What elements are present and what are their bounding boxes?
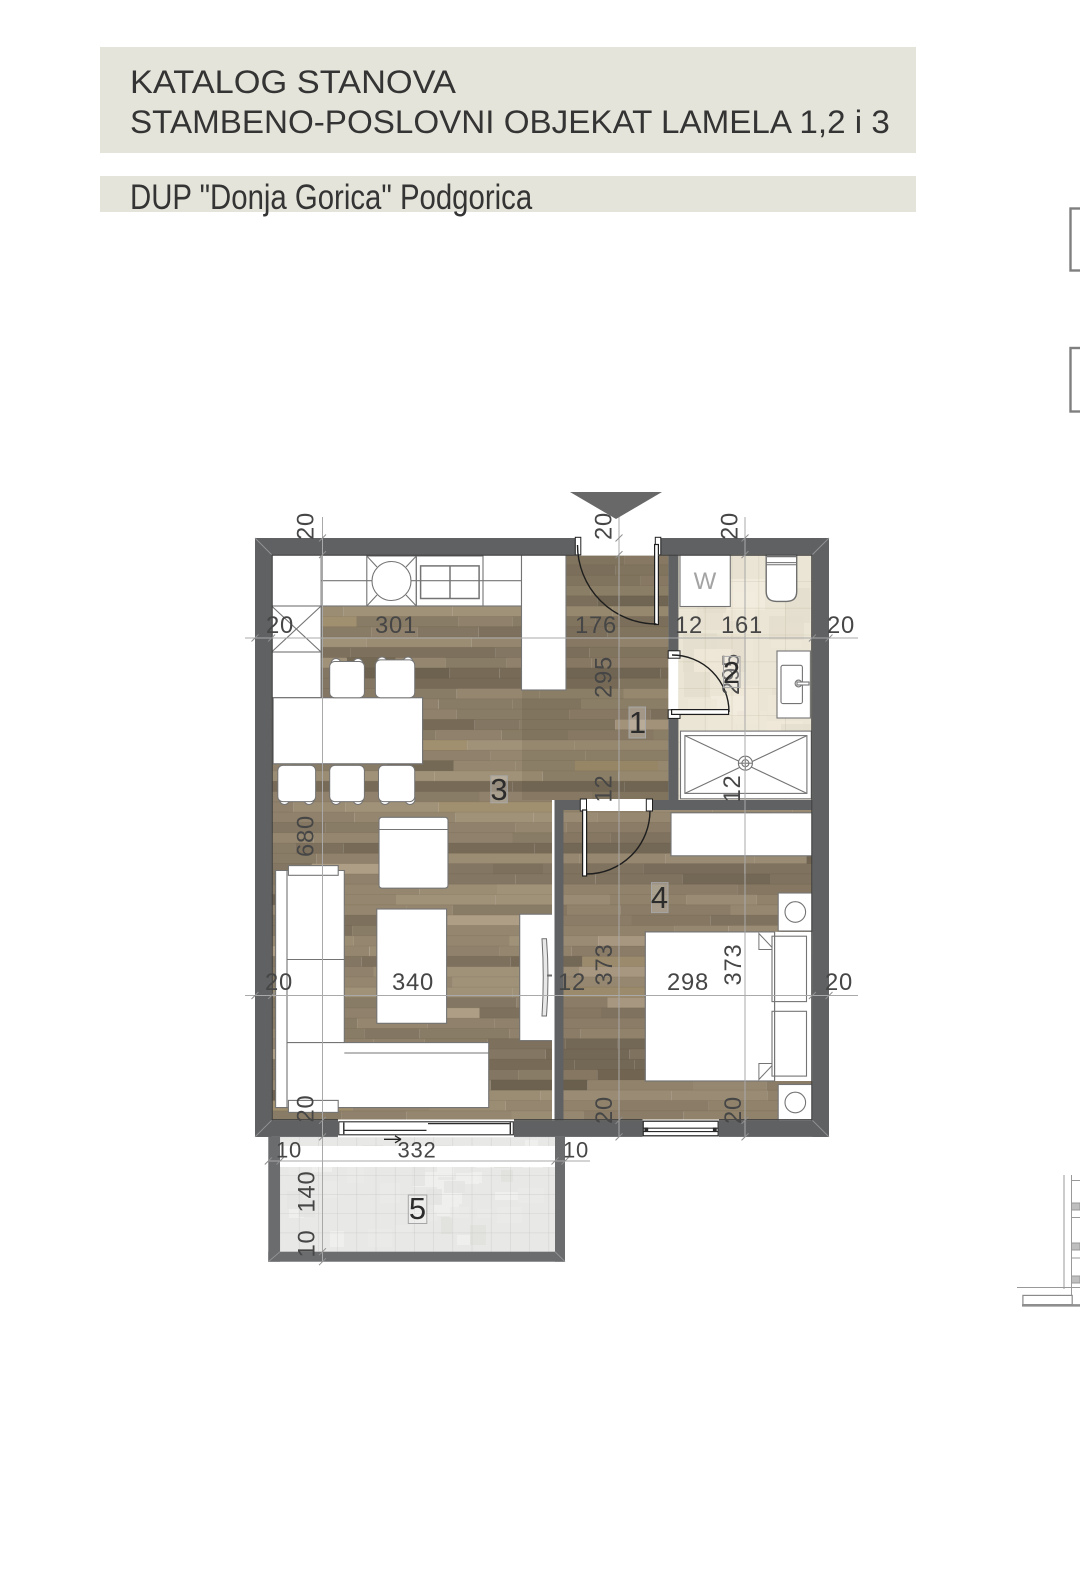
svg-text:332: 332 — [397, 1138, 436, 1163]
svg-text:20: 20 — [717, 512, 744, 540]
svg-text:20: 20 — [825, 969, 853, 996]
svg-text:340: 340 — [392, 969, 434, 996]
svg-text:1: 1 — [629, 705, 646, 740]
svg-text:2: 2 — [723, 655, 740, 690]
svg-text:12: 12 — [558, 969, 586, 996]
svg-text:20: 20 — [827, 612, 855, 639]
svg-text:20: 20 — [293, 1094, 320, 1122]
svg-text:5: 5 — [409, 1191, 426, 1226]
svg-text:12: 12 — [591, 774, 618, 802]
svg-text:10: 10 — [276, 1138, 302, 1163]
svg-text:20: 20 — [293, 512, 320, 540]
svg-text:10: 10 — [294, 1229, 321, 1257]
svg-text:373: 373 — [720, 943, 747, 985]
svg-text:298: 298 — [667, 969, 709, 996]
svg-text:140: 140 — [294, 1170, 321, 1212]
svg-text:176: 176 — [575, 612, 617, 639]
svg-text:12: 12 — [719, 774, 746, 802]
svg-text:295: 295 — [591, 656, 618, 698]
svg-text:12: 12 — [675, 612, 703, 639]
svg-text:10: 10 — [563, 1138, 589, 1163]
svg-text:373: 373 — [591, 943, 618, 985]
svg-text:161: 161 — [721, 612, 763, 639]
svg-text:680: 680 — [293, 815, 320, 857]
svg-text:20: 20 — [265, 969, 293, 996]
svg-text:20: 20 — [591, 1096, 618, 1124]
svg-text:20: 20 — [266, 612, 294, 639]
svg-text:4: 4 — [651, 880, 668, 915]
svg-text:20: 20 — [720, 1096, 747, 1124]
svg-text:3: 3 — [490, 772, 507, 807]
svg-text:301: 301 — [375, 612, 417, 639]
svg-text:W: W — [694, 568, 717, 595]
